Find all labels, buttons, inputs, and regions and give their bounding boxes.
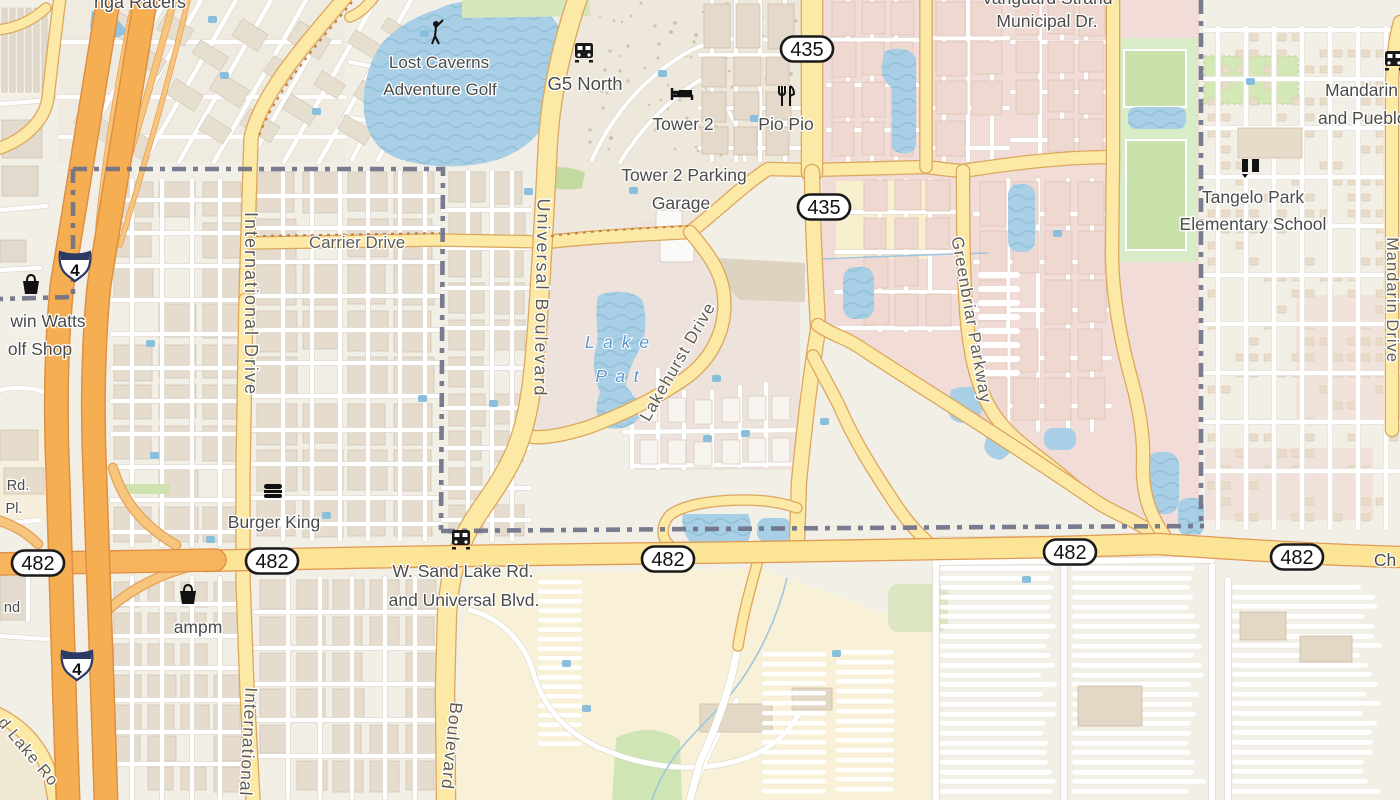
svg-text:nga Racers: nga Racers — [94, 0, 186, 12]
svg-text:482: 482 — [21, 553, 54, 575]
svg-text:G5 North: G5 North — [547, 73, 622, 94]
svg-text:and Universal Blvd.: and Universal Blvd. — [389, 590, 540, 610]
svg-text:Tangelo Park: Tangelo Park — [1202, 187, 1304, 207]
svg-text:435: 435 — [807, 197, 840, 219]
svg-text:P a t: P a t — [595, 366, 640, 386]
svg-text:482: 482 — [1053, 542, 1086, 564]
svg-text:482: 482 — [1280, 547, 1313, 569]
svg-text:Lost Caverns: Lost Caverns — [389, 53, 489, 72]
svg-text:Tower 2: Tower 2 — [652, 114, 713, 134]
svg-text:W. Sand Lake Rd.: W. Sand Lake Rd. — [392, 561, 533, 581]
svg-text:Carrier Drive: Carrier Drive — [309, 233, 405, 252]
svg-text:Universal Boulevard: Universal Boulevard — [530, 198, 553, 397]
svg-text:Adventure Golf: Adventure Golf — [383, 80, 497, 99]
svg-text:435: 435 — [790, 39, 823, 61]
svg-text:L a k e: L a k e — [585, 332, 651, 352]
svg-text:Rd.: Rd. — [7, 478, 30, 494]
svg-text:and Pueblo de: and Pueblo de — [1318, 108, 1400, 128]
svg-text:Pio Pio: Pio Pio — [758, 114, 813, 134]
svg-text:win Watts: win Watts — [9, 311, 85, 331]
svg-text:Pl.: Pl. — [6, 501, 23, 517]
svg-text:Mandarin Vill: Mandarin Vill — [1325, 80, 1400, 100]
svg-text:Mandarin Drive: Mandarin Drive — [1383, 237, 1400, 363]
svg-text:International Drive: International Drive — [241, 212, 261, 396]
svg-text:4: 4 — [70, 261, 80, 280]
svg-text:Tower 2 Parking: Tower 2 Parking — [621, 165, 746, 185]
svg-text:482: 482 — [651, 549, 684, 571]
svg-text:Municipal Dr.: Municipal Dr. — [996, 11, 1097, 31]
svg-text:Ch: Ch — [1374, 550, 1396, 570]
svg-text:ampm: ampm — [174, 617, 223, 637]
svg-text:Burger King: Burger King — [228, 512, 320, 532]
svg-text:olf Shop: olf Shop — [8, 339, 72, 359]
svg-text:Elementary School: Elementary School — [1180, 214, 1327, 234]
svg-text:Vanguard Strand: Vanguard Strand — [981, 0, 1112, 8]
svg-text:4: 4 — [72, 660, 82, 679]
svg-text:482: 482 — [255, 551, 288, 573]
svg-text:nd: nd — [4, 600, 20, 616]
svg-text:Garage: Garage — [652, 193, 710, 213]
